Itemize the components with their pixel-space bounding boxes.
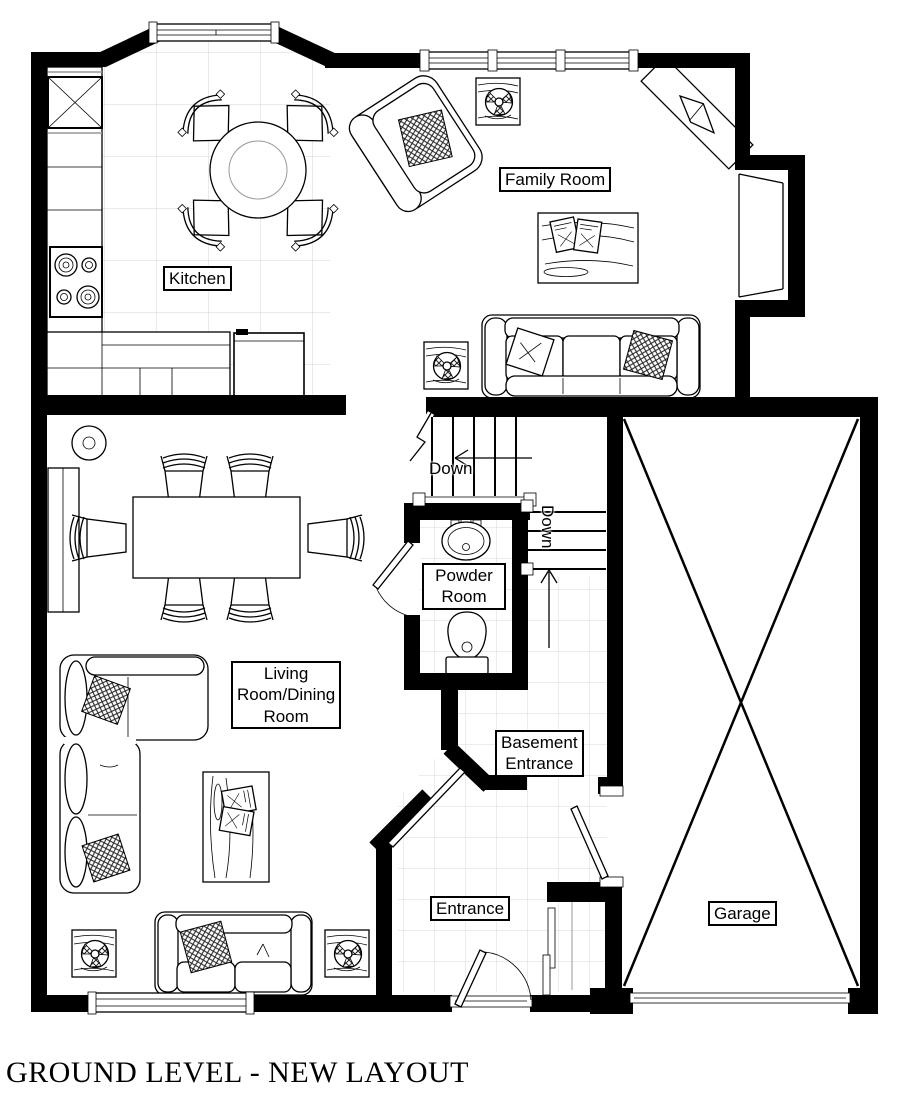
living-room-window xyxy=(88,992,254,1014)
entrance-label: Entrance xyxy=(430,896,510,921)
dining-table-set xyxy=(70,454,364,622)
family-room-plant-table-side xyxy=(424,342,468,389)
refrigerator xyxy=(234,329,304,396)
basement-entrance-label: Basement Entrance xyxy=(495,730,584,777)
living-room-coffee-table xyxy=(203,772,269,882)
buffet-cabinet xyxy=(48,468,79,612)
plant-table-right xyxy=(325,930,369,977)
garage-label: Garage xyxy=(708,901,777,926)
powder-room-door xyxy=(373,541,413,616)
family-room-plant-table-top xyxy=(476,78,520,125)
floor-plan-page: Kitchen Family Room Powder Room Living R… xyxy=(0,0,904,1120)
planter-pot xyxy=(72,426,106,460)
loveseat xyxy=(155,912,312,995)
drawing-title: GROUND LEVEL - NEW LAYOUT xyxy=(6,1056,469,1090)
stove xyxy=(50,247,102,317)
family-room-armchair xyxy=(344,70,488,217)
stairs-down-label-basement: Down xyxy=(537,505,558,548)
stairs-down-label-upper: Down xyxy=(429,458,472,479)
garage-door xyxy=(630,993,850,1003)
family-room-label: Family Room xyxy=(499,167,611,192)
family-room-window xyxy=(420,50,638,71)
living-dining-label: Living Room/Dining Room xyxy=(231,661,341,729)
family-room-coffee-table xyxy=(538,213,638,283)
kitchen-sink-cabinet xyxy=(48,72,102,133)
kitchen-bay-window xyxy=(149,22,279,43)
family-room-sofa xyxy=(482,315,700,398)
sectional-sofa xyxy=(60,655,208,893)
plant-table-left xyxy=(72,930,116,977)
fireplace xyxy=(735,170,788,300)
kitchen-label: Kitchen xyxy=(163,266,232,291)
toilet xyxy=(446,612,488,674)
basement-hall-floor xyxy=(528,577,607,690)
floor-plan-drawing xyxy=(0,0,904,1120)
powder-room-label: Powder Room xyxy=(422,563,506,610)
